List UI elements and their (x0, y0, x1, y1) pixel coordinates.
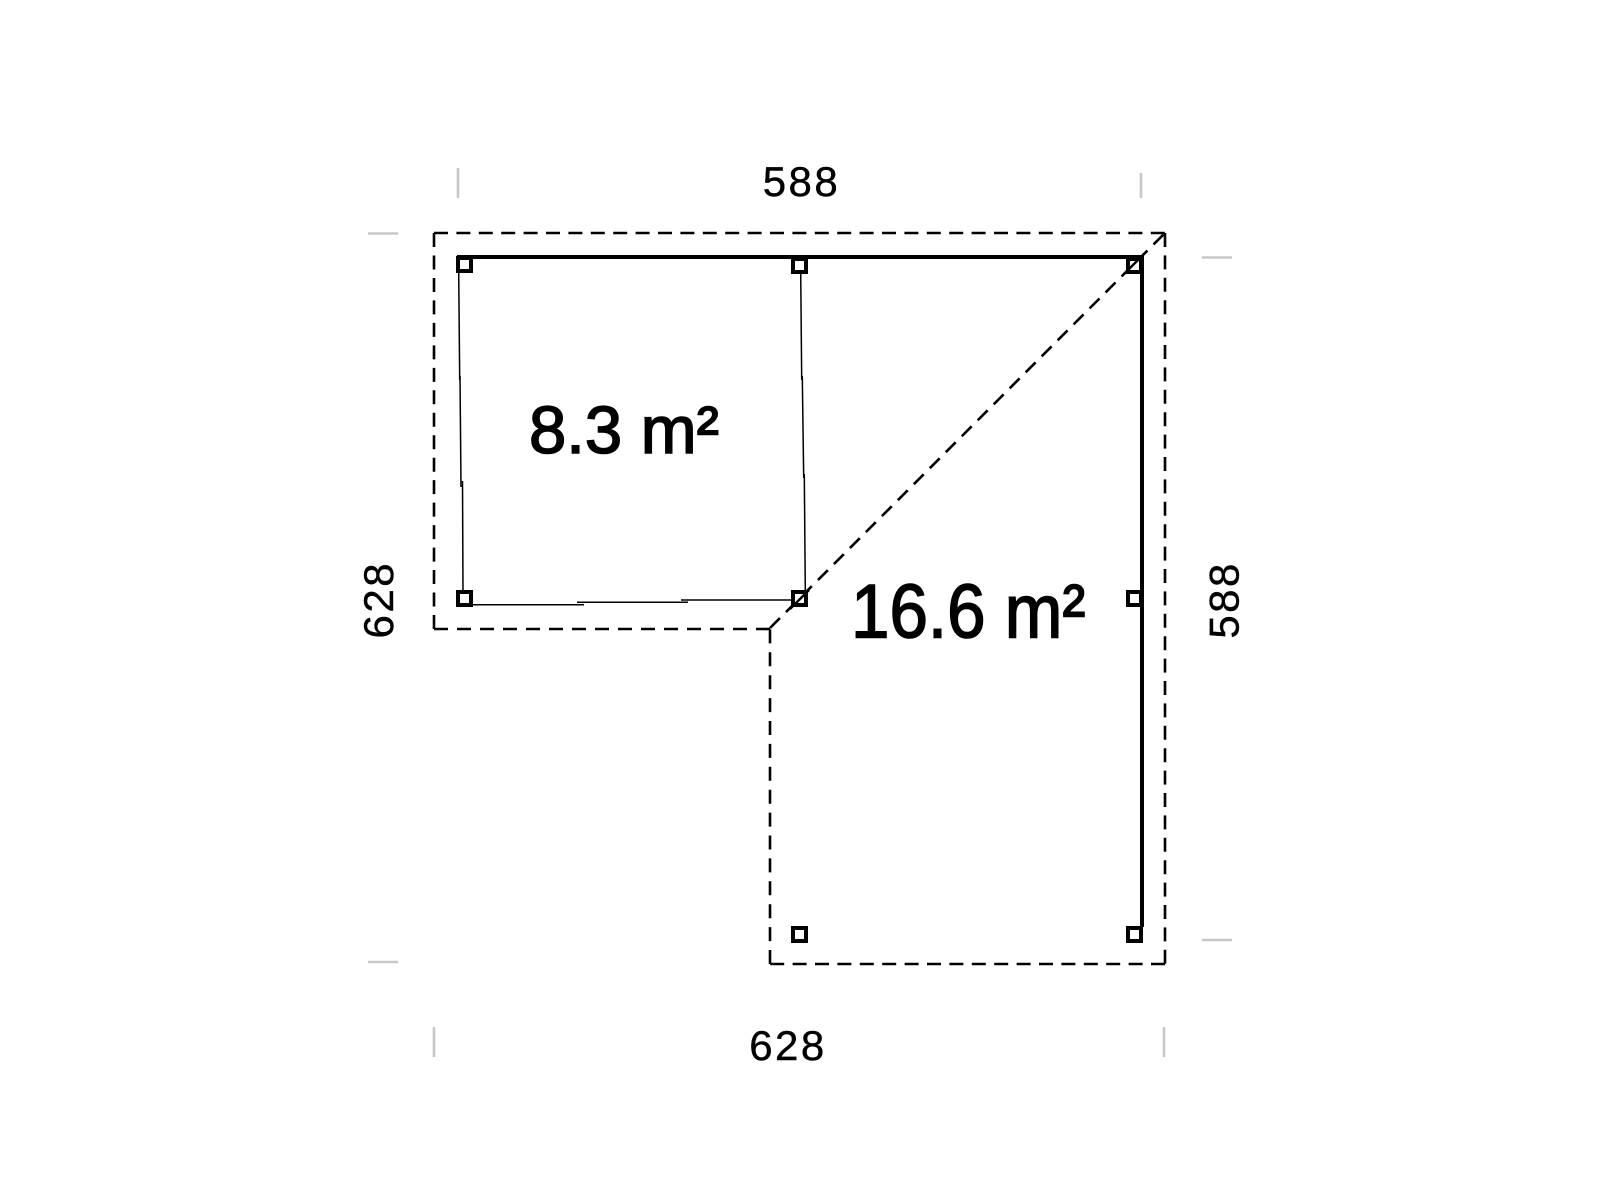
svg-text:8.3 m²: 8.3 m² (529, 393, 719, 468)
svg-text:628: 628 (355, 561, 402, 639)
svg-text:16.6 m²: 16.6 m² (851, 570, 1085, 655)
svg-text:628: 628 (749, 1022, 827, 1069)
svg-text:588: 588 (1201, 561, 1248, 639)
svg-text:588: 588 (763, 158, 841, 205)
